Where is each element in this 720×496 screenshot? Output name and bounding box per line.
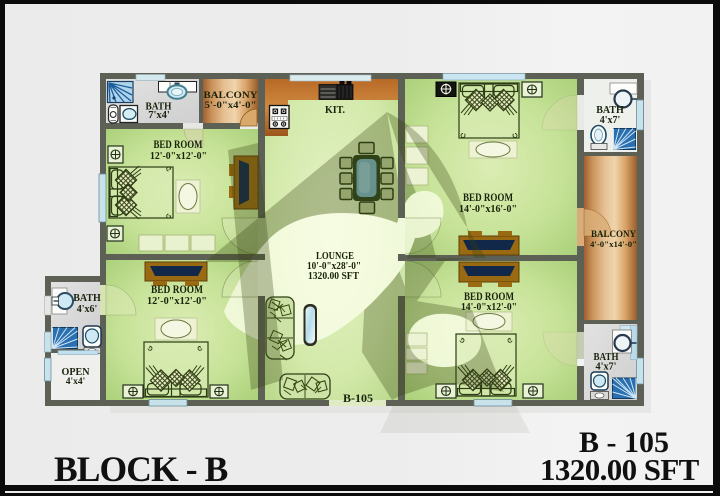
svg-text:BATH: BATH	[73, 293, 101, 304]
svg-text:4'-0"x14'-0": 4'-0"x14'-0"	[590, 239, 637, 249]
svg-text:BED ROOM: BED ROOM	[151, 284, 203, 296]
svg-text:12'-0"x12'-0": 12'-0"x12'-0"	[147, 296, 207, 307]
svg-text:14'-0"x12'-0": 14'-0"x12'-0"	[461, 302, 517, 313]
svg-text:KIT.: KIT.	[325, 105, 346, 116]
svg-text:7'x4': 7'x4'	[148, 110, 170, 121]
svg-text:4'x6': 4'x6'	[77, 304, 98, 315]
svg-text:BED ROOM: BED ROOM	[154, 139, 203, 151]
svg-text:14'-0"x16'-0": 14'-0"x16'-0"	[459, 204, 517, 215]
svg-text:BED ROOM: BED ROOM	[463, 192, 513, 204]
svg-text:B-105: B-105	[343, 391, 373, 405]
svg-text:4'x7': 4'x7'	[596, 362, 617, 373]
svg-text:BALCONY: BALCONY	[591, 229, 636, 239]
svg-text:12'-0"x12'-0": 12'-0"x12'-0"	[150, 151, 207, 162]
svg-text:4'x7': 4'x7'	[600, 115, 621, 126]
svg-text:1320.00 SFT: 1320.00 SFT	[308, 271, 359, 282]
svg-text:4'x4': 4'x4'	[66, 377, 86, 387]
svg-text:5'-0"x4'-0": 5'-0"x4'-0"	[205, 100, 257, 110]
